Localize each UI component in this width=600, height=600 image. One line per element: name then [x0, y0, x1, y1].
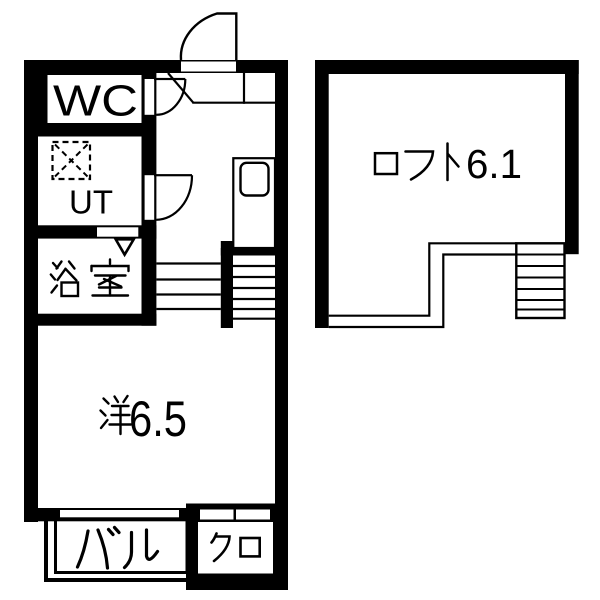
svg-text:UT: UT — [69, 184, 113, 221]
svg-text:WC: WC — [53, 78, 138, 126]
svg-text:6.5: 6.5 — [129, 391, 187, 447]
svg-text:6.1: 6.1 — [466, 141, 522, 187]
